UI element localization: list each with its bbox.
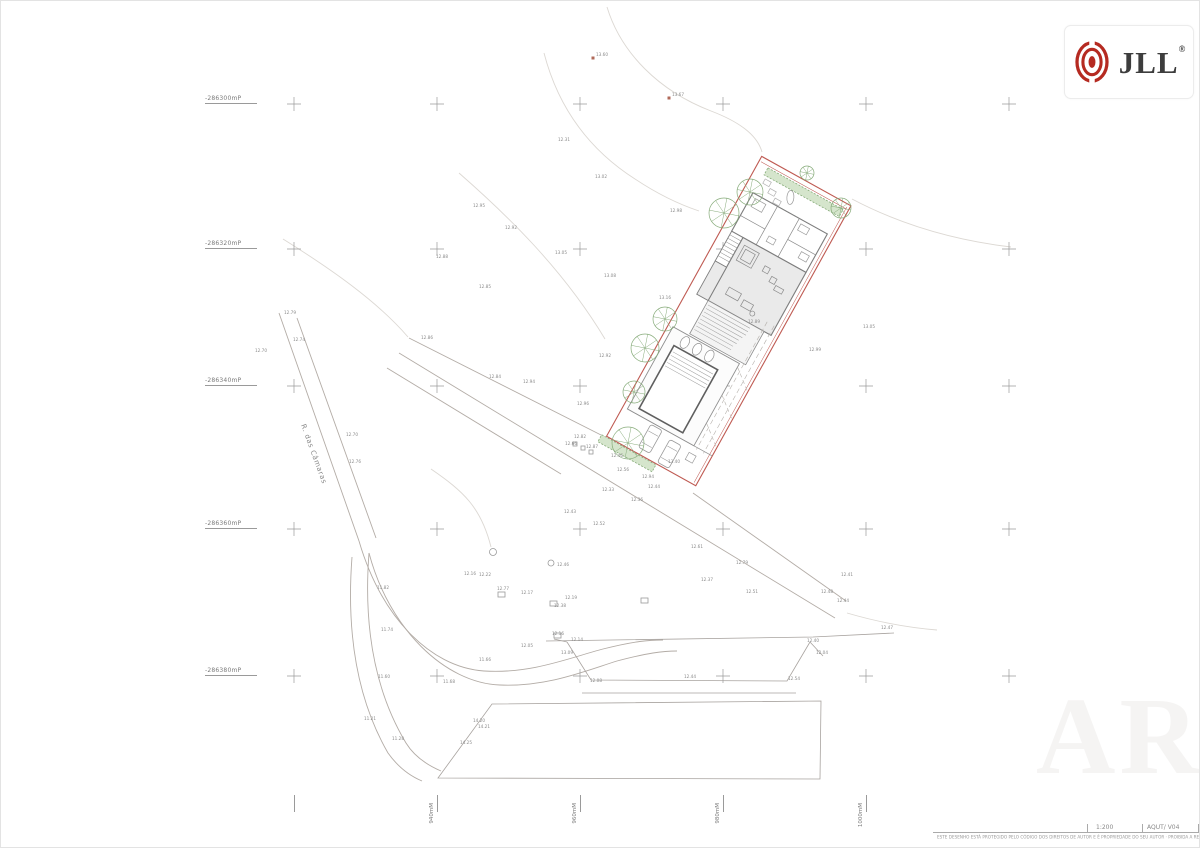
tree-symbol [631,334,659,362]
spot-elevation: 12.37 [701,577,713,582]
spot-elevation: 12.04 [816,650,828,655]
spot-elevation: 12.46 [557,562,569,567]
grid-cross [287,522,301,536]
grid-cross [1002,242,1016,256]
grid-cross [573,379,587,393]
drawing-scale: 1:200 [1096,824,1113,831]
spot-elevation: 11.82 [377,585,389,590]
grid-cross [287,379,301,393]
spot-elevation: 12.44 [684,674,696,679]
jll-logo-icon [1072,37,1112,87]
spot-elevation: 11.60 [378,674,390,679]
titleblock-divider [1087,824,1088,833]
titleblock-divider [1198,824,1199,833]
spot-elevation: 12.44 [648,484,660,489]
grid-cross [573,522,587,536]
bottom-structures-layer [438,442,894,779]
grid-cross [573,242,587,256]
spot-elevation: 12.41 [841,572,853,577]
spot-elevation: 14.20 [473,718,485,723]
grid-cross [287,97,301,111]
spot-elevation: 12.86 [421,335,433,340]
spot-elevation: 12.79 [284,310,296,315]
site-plan-sheet: R. das Câmaras [0,0,1200,848]
grid-label-northing: -286380mP [205,667,257,676]
spot-elevation: 12.85 [479,284,491,289]
spot-elevation: 12.56 [617,467,629,472]
grid-cross [1002,379,1016,393]
spot-elevation: 12.44 [837,598,849,603]
spot-elevation: 11.28 [392,736,404,741]
grid-tick-easting [866,795,867,812]
grid-cross [287,242,301,256]
spot-elevation: 12.48 [821,589,833,594]
survey-point-marker [668,97,671,100]
site-plan-drawing: R. das Câmaras [1,1,1200,848]
grid-label-northing: -286320mP [205,240,257,249]
spot-elevation: 12.70 [255,348,267,353]
spot-elevation: 12.46 [611,453,623,458]
grid-cross [430,669,444,683]
grid-label-easting: 1000mM [858,803,864,845]
spot-elevation: 13.05 [863,324,875,329]
spot-elevation: 12.16 [552,631,564,636]
spot-elevation: 12.52 [593,521,605,526]
grid-cross [430,522,444,536]
spot-elevation: 13.09 [561,650,573,655]
jll-logo-text: JLL® [1119,47,1187,78]
copyright-notice: ESTE DESENHO ESTÁ PROTEGIDO PELO CÓDIGO … [937,835,1200,840]
survey-point-marker [592,57,595,60]
grid-tick-easting [580,795,581,812]
grid-tick-easting [294,795,295,812]
spot-elevation: 12.98 [670,208,682,213]
spot-elevation: 13.02 [595,174,607,179]
spot-elevation: 12.84 [489,374,501,379]
grid-cross [859,379,873,393]
grid-tick-easting [723,795,724,812]
grid-label-easting: 980mM [715,803,721,845]
spot-elevation: 13.08 [604,273,616,278]
grid-cross [430,97,444,111]
jll-logo-card: JLL® [1064,25,1194,99]
spot-elevation: 12.51 [746,589,758,594]
grid-tick-easting [437,795,438,812]
spot-elevation: 12.92 [599,353,611,358]
grid-label-northing: -286300mP [205,95,257,104]
spot-elevation: 12.43 [564,509,576,514]
grid-cross [859,522,873,536]
spot-elevation: 13.05 [555,250,567,255]
grid-cross [573,97,587,111]
spot-elevation: 12.99 [809,347,821,352]
tree-symbol [653,307,677,331]
spot-elevation: 11.68 [443,679,455,684]
grid-cross [859,669,873,683]
spot-elevation: 12.19 [565,595,577,600]
spot-elevation: 12.22 [479,572,491,577]
spot-elevation: 12.76 [349,459,361,464]
spot-elevation: 12.92 [505,225,517,230]
grid-cross [1002,522,1016,536]
spot-elevation: 12.94 [642,474,654,479]
survey-points-layer: 13.6013.67 [592,52,685,100]
spot-elevation: 12.66 [565,441,577,446]
spot-elevation: 14.21 [478,724,490,729]
spot-elevation: 12.61 [691,544,703,549]
spot-elevation: 12.77 [497,586,509,591]
roads-layer [279,313,846,781]
spot-elevation: 13.16 [659,295,671,300]
car-symbol [638,424,662,453]
spot-elevation: 12.14 [571,637,583,642]
spot-elevation: 11.66 [479,657,491,662]
grid-label-easting: 940mM [429,803,435,845]
spot-elevation: 11.74 [381,627,393,632]
grid-cross [1002,669,1016,683]
spot-elevation: 12.16 [464,571,476,576]
road-name-label: R. das Câmaras [299,423,328,485]
spot-elevation: 12.94 [523,379,535,384]
car-symbol [657,439,681,468]
spot-elevation: 12.87 [586,444,598,449]
survey-point-label: 13.60 [596,52,608,57]
spot-elevation: 12.79 [736,560,748,565]
spot-elevation: 12.38 [554,603,566,608]
tree-symbol [800,166,814,180]
grid-cross [859,242,873,256]
grid-label-northing: -286340mP [205,377,257,386]
site-plan-group [598,154,851,494]
grid-cross [716,97,730,111]
spot-elevation: 12.47 [881,625,893,630]
spot-elevation: 12.17 [521,590,533,595]
spot-elevation: 12.36 [631,497,643,502]
background-watermark: ARQ [1036,673,1200,800]
spot-elevation: 12.31 [558,137,570,142]
spot-elevation: 12.05 [521,643,533,648]
grid-cross [287,669,301,683]
spot-elevation: 12.88 [436,254,448,259]
spot-elevation: 12.08 [590,678,602,683]
grid-cross [1002,97,1016,111]
spot-elevation: 12.89 [748,319,760,324]
spot-elevation: 12.70 [346,432,358,437]
grid-cross [716,522,730,536]
spot-elevation: 13.40 [668,459,680,464]
titleblock-line [933,832,1200,833]
spot-elevation: 12.40 [807,638,819,643]
grid-cross [430,379,444,393]
registered-mark: ® [1179,44,1187,54]
spot-elevation: 12.74 [293,337,305,342]
survey-point-label: 13.67 [672,92,684,97]
spot-elevation: 12.95 [473,203,485,208]
grid-label-easting: 960mM [572,803,578,845]
grid-label-northing: -286360mP [205,520,257,529]
spot-elevation: 12.33 [602,487,614,492]
spot-elevation: 12.96 [577,401,589,406]
spot-elevation: 12.54 [788,676,800,681]
spot-elevation: 14.25 [460,740,472,745]
spot-elevation: 12.82 [574,434,586,439]
sheet-reference: AQUT/ V04 [1147,824,1179,831]
titleblock-divider [1142,824,1143,833]
spot-elevation: 11.21 [364,716,376,721]
contour-lines-layer [283,7,1011,630]
grid-cross [859,97,873,111]
